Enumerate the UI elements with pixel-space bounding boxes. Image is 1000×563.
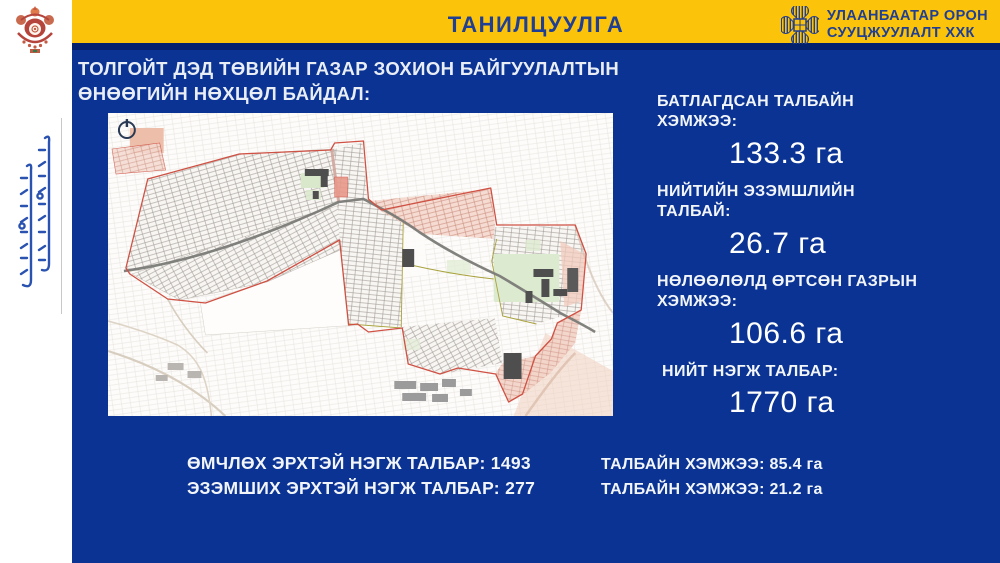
ulaanbaatar-crest-icon [11, 5, 59, 57]
presentation-slide: ТАНИЛЦУУЛГА УЛААНБААТАР ОРОН [0, 0, 1000, 563]
stat-value: 106.6 га [657, 317, 977, 351]
stat-total-parcels: НИЙТ НЭГЖ ТАЛБАР: 1770 га [657, 362, 977, 420]
cadastral-map-graphic [108, 113, 613, 416]
stats-column: БАТЛАГДСАН ТАЛБАЙН ХЭМЖЭЭ: 133.3 га НИЙТ… [657, 92, 977, 431]
company-name: УЛААНБААТАР ОРОН СУУЦЖУУЛАЛТ ХХК [827, 8, 988, 41]
cadastral-map [108, 113, 613, 416]
stat-value: 1770 га [657, 386, 977, 420]
stat-public-area: НИЙТИЙН ЭЗЭМШЛИЙН ТАЛБАЙ: 26.7 га [657, 182, 977, 261]
company-logo: УЛААНБААТАР ОРОН СУУЦЖУУЛАЛТ ХХК [781, 4, 988, 46]
slide-heading-line1: ТОЛГОЙТ ДЭД ТӨВИЙН ГАЗАР ЗОХИОН БАЙГУУЛА… [78, 57, 658, 82]
left-white-strip [0, 0, 72, 563]
stat-affected-land: НӨЛӨӨЛӨЛД ӨРТСӨН ГАЗРЫН ХЭМЖЭЭ: 106.6 га [657, 272, 977, 351]
slide-heading: ТОЛГОЙТ ДЭД ТӨВИЙН ГАЗАР ЗОХИОН БАЙГУУЛА… [78, 57, 658, 107]
company-name-line2: СУУЦЖУУЛАЛТ ХХК [827, 25, 988, 42]
stat-label: НӨЛӨӨЛӨЛД ӨРТСӨН ГАЗРЫН ХЭМЖЭЭ: [657, 272, 932, 313]
area-sizes-block: ТАЛБАЙН ХЭМЖЭЭ: 85.4 га ТАЛБАЙН ХЭМЖЭЭ: … [601, 453, 823, 503]
slide-heading-line2: ӨНӨӨГИЙН НӨХЦӨЛ БАЙДАЛ: [78, 82, 658, 107]
possessed-parcels-line: ЭЗЭМШИХ ЭРХТЭЙ НЭГЖ ТАЛБАР: 277 [187, 476, 535, 501]
stat-value: 26.7 га [657, 227, 977, 261]
stat-value: 133.3 га [657, 137, 977, 171]
owned-parcels-line: ӨМЧЛӨХ ЭРХТЭЙ НЭГЖ ТАЛБАР: 1493 [187, 451, 535, 476]
area-size-line2: ТАЛБАЙН ХЭМЖЭЭ: 21.2 га [601, 478, 823, 503]
stat-label: НИЙТИЙН ЭЗЭМШЛИЙН ТАЛБАЙ: [657, 182, 932, 223]
parcel-counts-block: ӨМЧЛӨХ ЭРХТЭЙ НЭГЖ ТАЛБАР: 1493 ЭЗЭМШИХ … [187, 451, 535, 501]
area-size-line1: ТАЛБАЙН ХЭМЖЭЭ: 85.4 га [601, 453, 823, 478]
company-name-line1: УЛААНБААТАР ОРОН [827, 8, 988, 25]
stat-label: НИЙТ НЭГЖ ТАЛБАР: [657, 362, 932, 382]
header-band: ТАНИЛЦУУЛГА УЛААНБААТАР ОРОН [72, 0, 1000, 50]
script-divider-line [61, 118, 62, 314]
vertical-mongolian-script [14, 132, 58, 300]
stat-label: БАТЛАГДСАН ТАЛБАЙН ХЭМЖЭЭ: [657, 92, 932, 133]
stat-approved-area: БАТЛАГДСАН ТАЛБАЙН ХЭМЖЭЭ: 133.3 га [657, 92, 977, 171]
ub-housing-knot-icon [781, 6, 819, 44]
